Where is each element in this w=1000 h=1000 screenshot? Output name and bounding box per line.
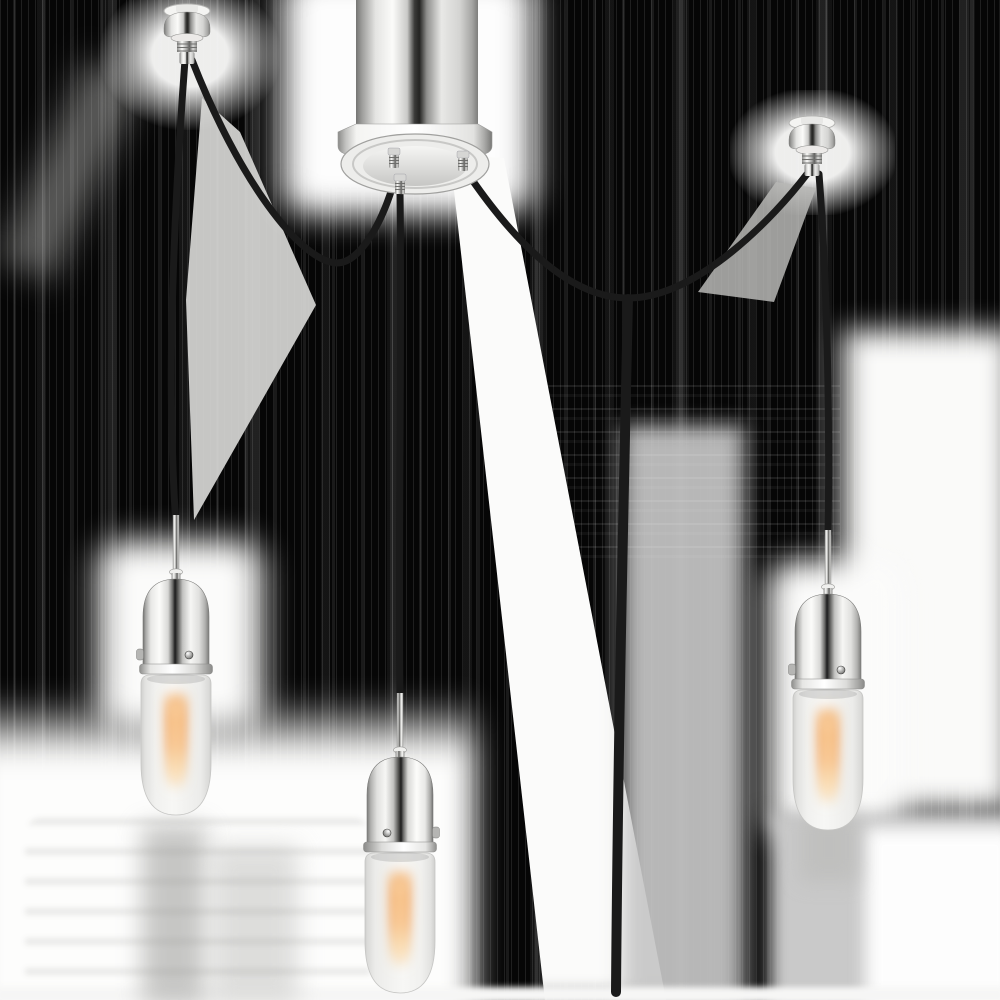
pendant-center [364, 693, 440, 993]
cord-set [171, 60, 828, 992]
right-drop-cord [819, 174, 829, 534]
pendant-right [789, 530, 865, 830]
canopy-cord-grip-center [394, 174, 406, 194]
swag-anchor-left [164, 4, 210, 64]
canopy-cylinder [356, 0, 478, 130]
canopy-cord-grip-right [457, 151, 469, 171]
pendant-left [137, 515, 213, 815]
ceiling-canopy [338, 0, 492, 194]
center-drop-cord [399, 192, 400, 697]
product-image: Three-light swag pendant chandelier prod… [0, 0, 1000, 1000]
swag-anchor-right [789, 116, 835, 176]
left-drop-cord [171, 60, 185, 519]
canopy-cord-grip-left [388, 148, 400, 168]
right-swag-cord [464, 168, 807, 298]
power-cord [616, 299, 628, 992]
canopy-plate-center [363, 146, 467, 186]
pendant-fixture-illustration: Three-light swag pendant chandelier prod… [0, 0, 1000, 1000]
